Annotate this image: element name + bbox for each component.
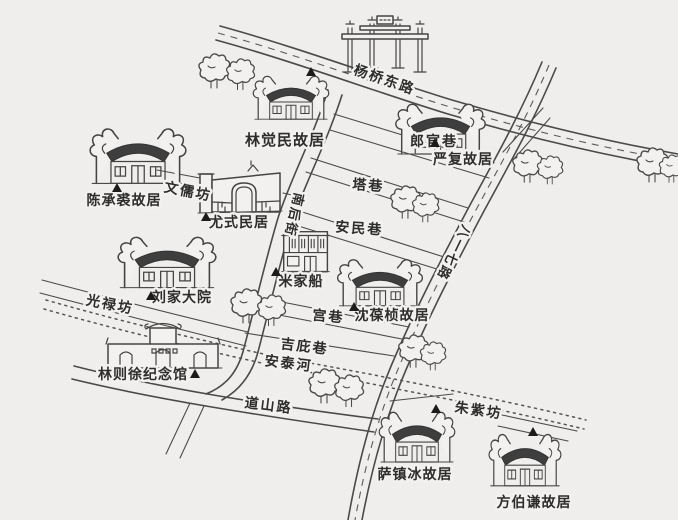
site-label-you-style: 尤式民居: [209, 214, 269, 230]
lane-label-anmin: 安民巷: [335, 218, 384, 237]
building-mi-jia-chuan: [282, 232, 330, 272]
lane-label-gong: 宫巷: [312, 307, 345, 326]
site-label-lin-juemin: 林觉民故居: [245, 131, 325, 149]
site-label-lin-zexu: 林则徐纪念馆: [98, 366, 188, 382]
site-label-mi-jia-chuan: 米家船: [279, 273, 324, 289]
site-label-shen-baozhen: 沈葆桢故居: [355, 307, 430, 323]
lane-label-ta: 塔巷: [352, 176, 385, 194]
map-svg: 杨桥东路 南后街 八一七路 道山路 郎官巷 塔巷 安民巷 宫巷 吉庇巷 文儒坊 …: [0, 0, 678, 520]
site-label-sa-zhenbing: 萨镇冰故居: [378, 466, 453, 482]
hand-drawn-map: 杨桥东路 南后街 八一七路 道山路 郎官巷 塔巷 安民巷 宫巷 吉庇巷 文儒坊 …: [0, 0, 678, 520]
site-label-yan-fu: 严复故居: [432, 151, 493, 167]
site-label-liu-family: 刘家大院: [152, 289, 212, 305]
site-label-chen-chengqiu: 陈承裘故居: [87, 192, 162, 208]
site-label-fang-boqian: 方伯谦故居: [497, 494, 572, 510]
